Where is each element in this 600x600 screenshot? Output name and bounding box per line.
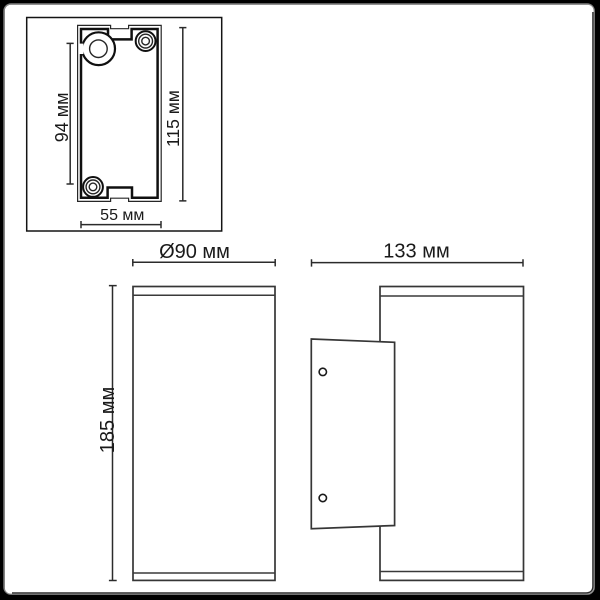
svg-text:55 мм: 55 мм [100, 207, 144, 224]
svg-text:185 мм: 185 мм [97, 387, 119, 453]
svg-text:94 мм: 94 мм [52, 93, 72, 143]
svg-text:Ø90 мм: Ø90 мм [159, 241, 230, 263]
svg-text:133 мм: 133 мм [383, 241, 449, 263]
svg-text:115 мм: 115 мм [163, 90, 183, 147]
